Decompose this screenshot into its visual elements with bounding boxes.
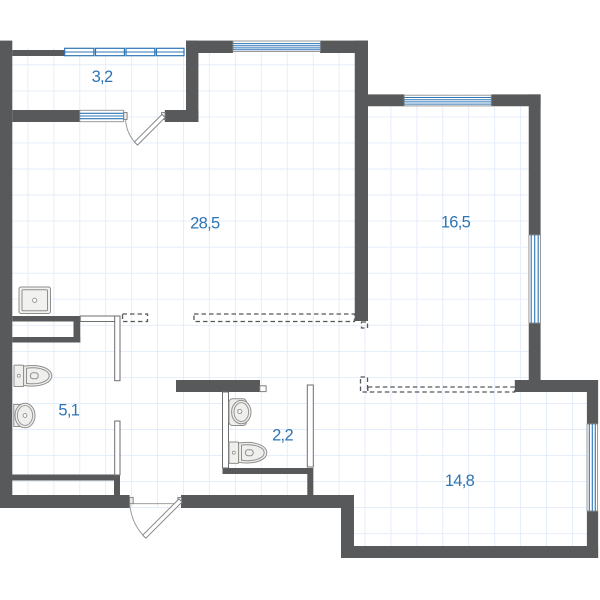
svg-text:28,5: 28,5 bbox=[190, 214, 220, 232]
svg-text:2,2: 2,2 bbox=[272, 427, 293, 445]
svg-text:14,8: 14,8 bbox=[445, 472, 475, 490]
svg-text:5,1: 5,1 bbox=[58, 402, 79, 420]
svg-text:3,2: 3,2 bbox=[92, 68, 113, 86]
svg-text:16,5: 16,5 bbox=[441, 214, 471, 232]
